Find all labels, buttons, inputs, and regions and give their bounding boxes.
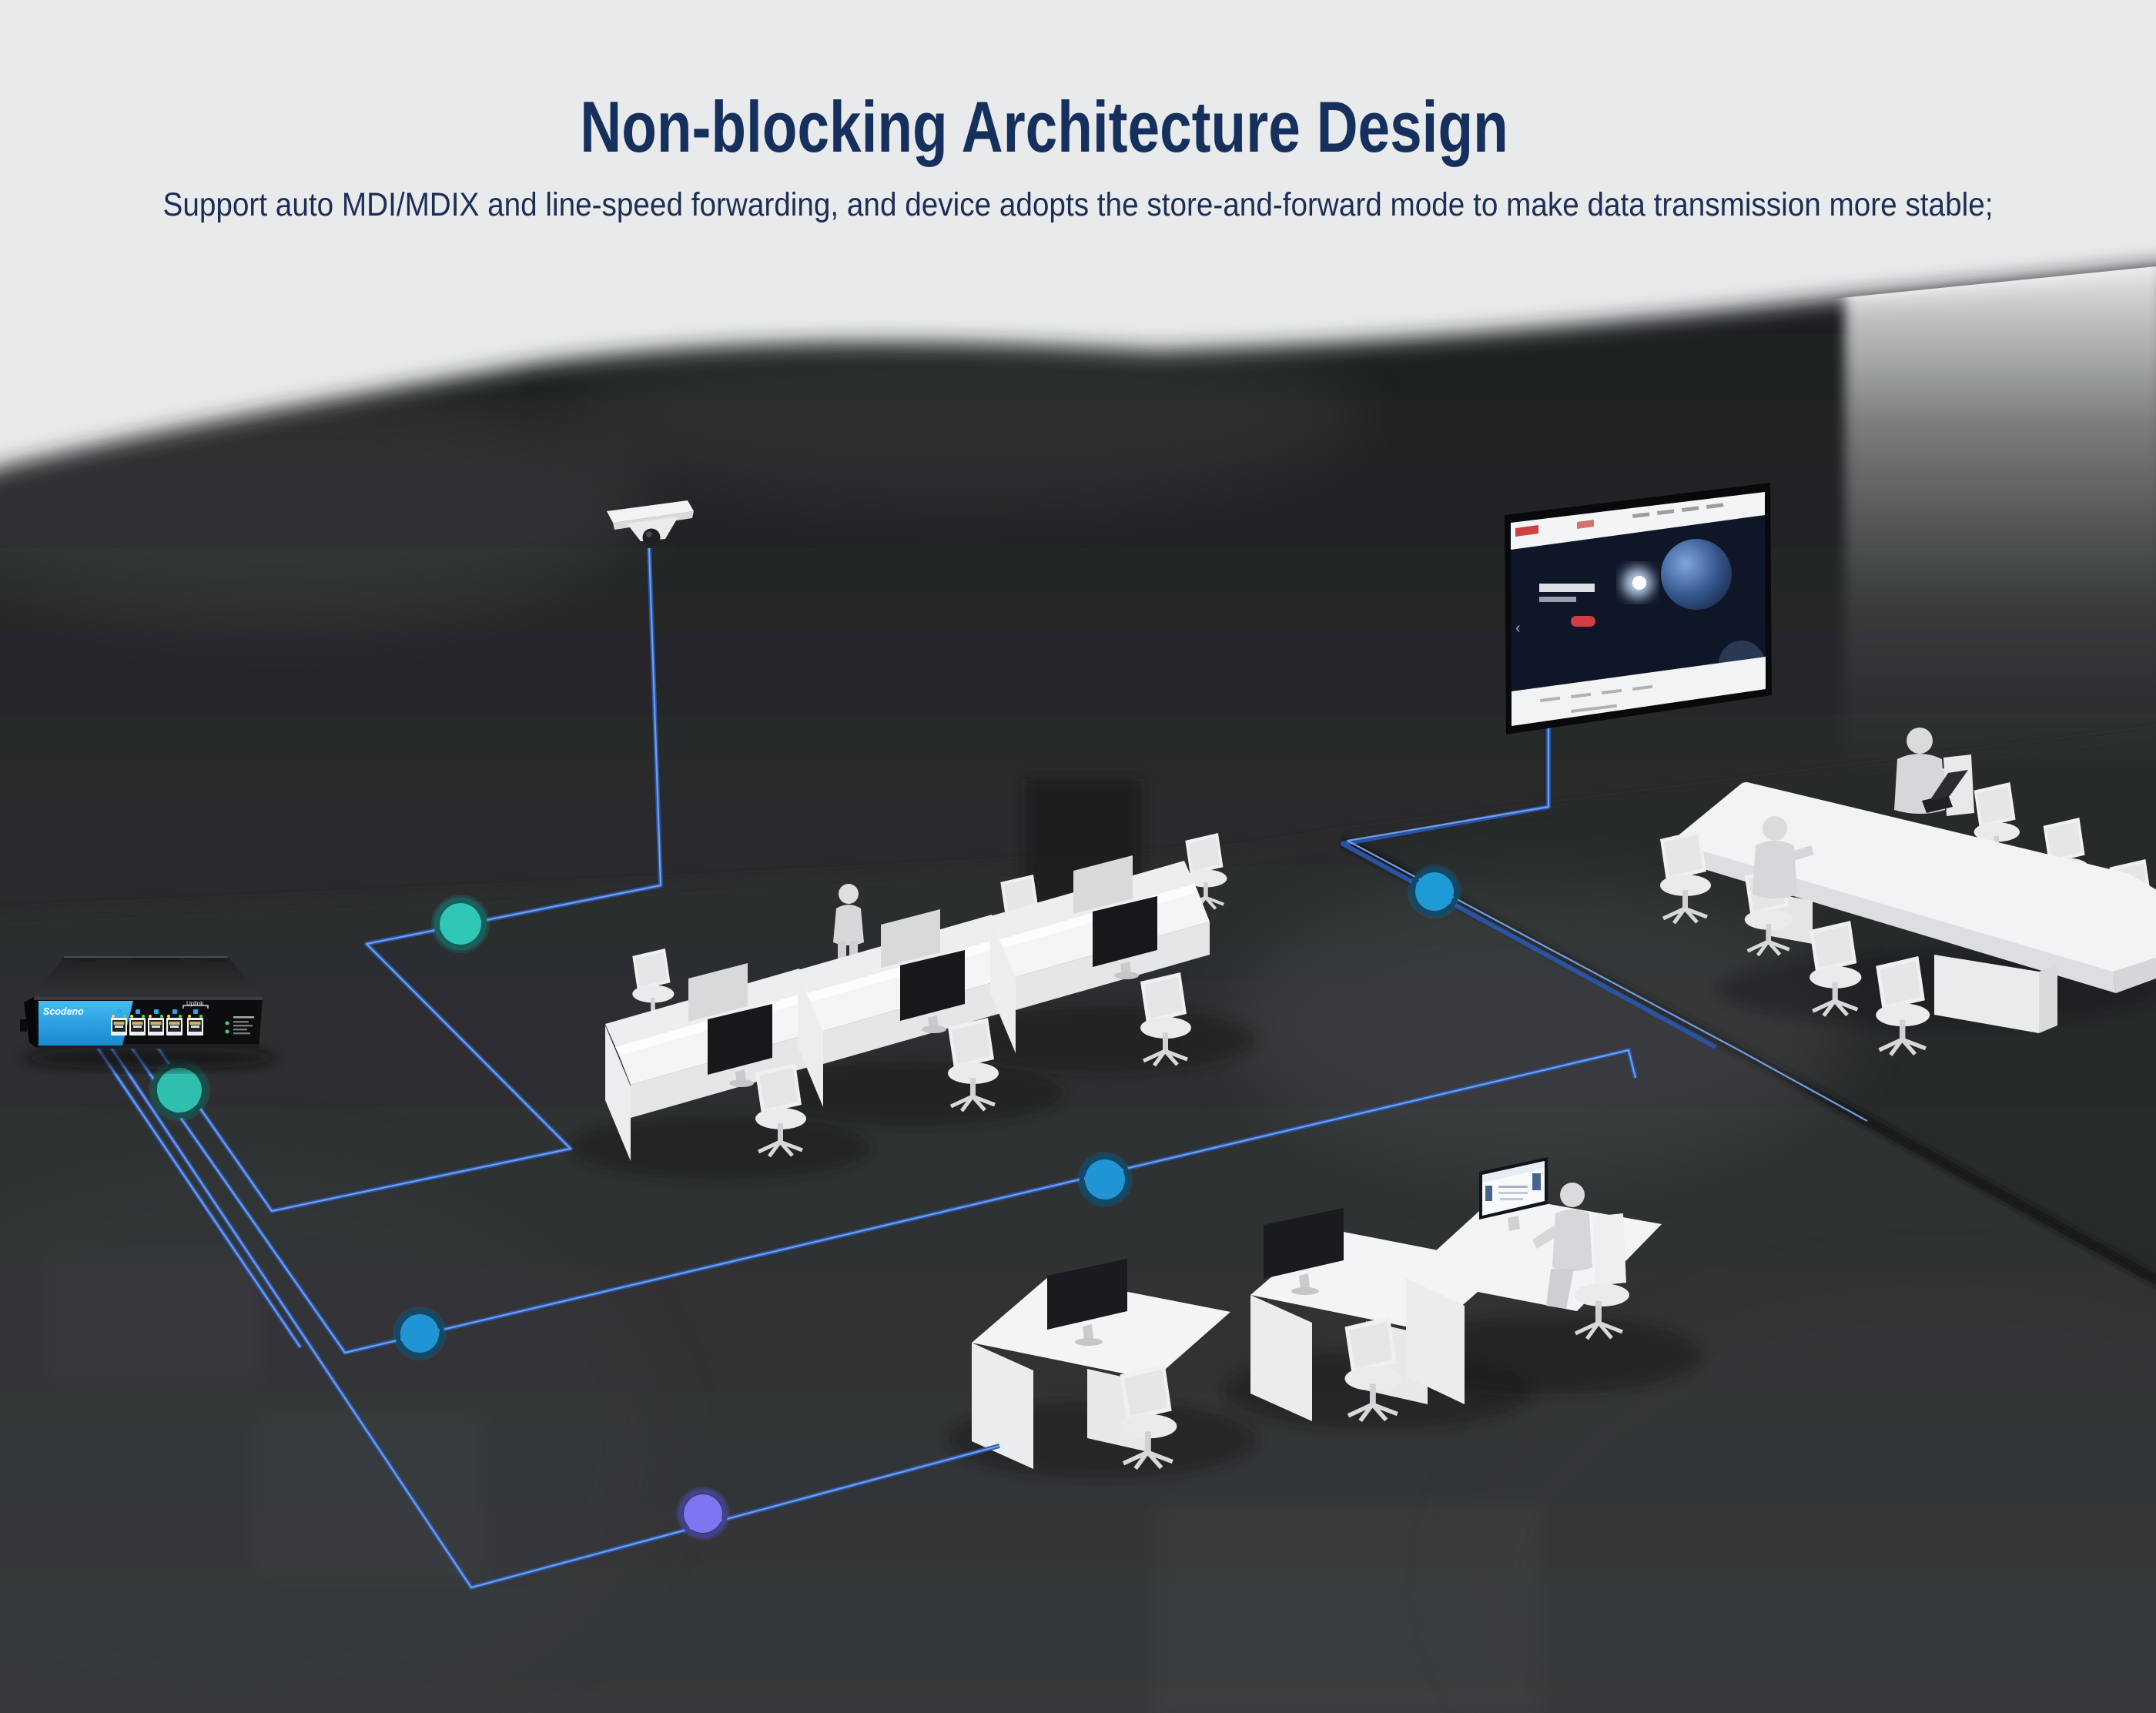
svg-text:Uplink: Uplink bbox=[186, 1000, 204, 1007]
svg-text:‹: ‹ bbox=[1515, 620, 1521, 637]
svg-text:Scodeno: Scodeno bbox=[43, 1006, 84, 1017]
